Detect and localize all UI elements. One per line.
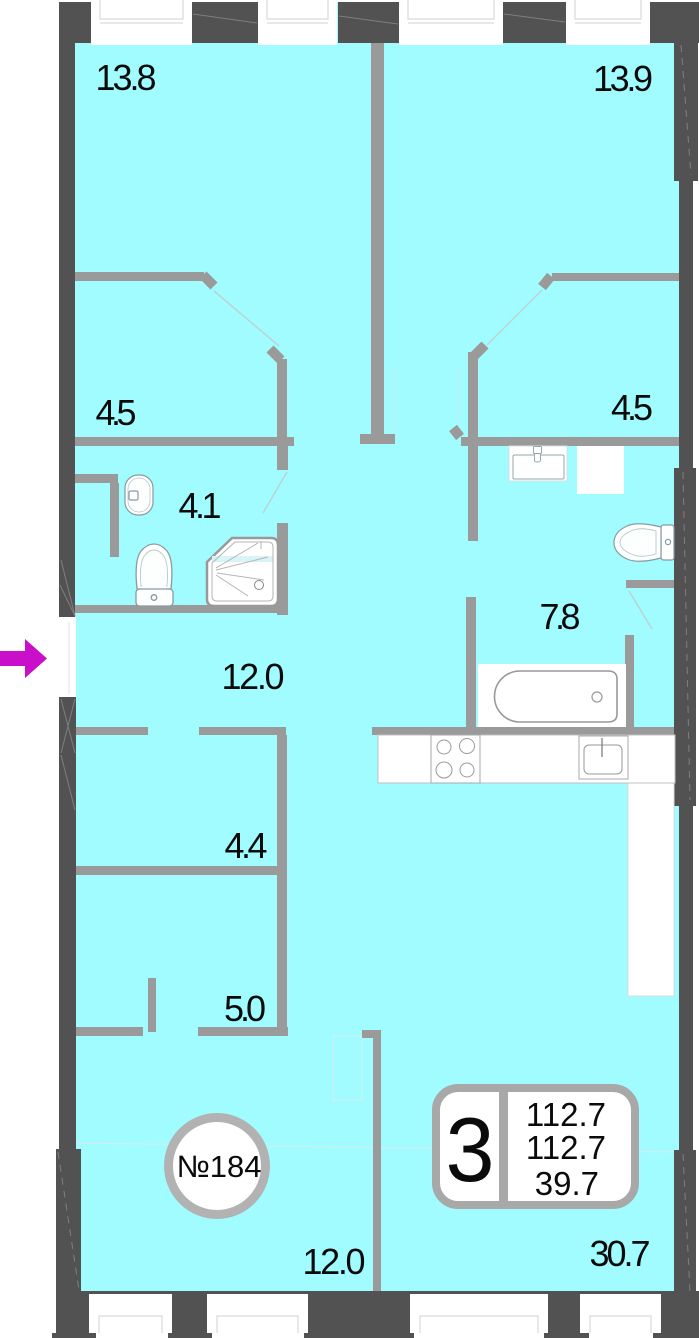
svg-text:112.7: 112.7	[526, 1096, 606, 1133]
svg-text:13.8: 13.8	[96, 57, 157, 98]
svg-text:13.9: 13.9	[593, 58, 653, 99]
svg-text:№184: №184	[177, 1149, 262, 1184]
svg-text:7.8: 7.8	[540, 596, 581, 637]
svg-text:4.5: 4.5	[611, 387, 653, 428]
svg-text:4.5: 4.5	[96, 392, 137, 433]
svg-text:39.7: 39.7	[535, 1165, 599, 1202]
svg-text:30.7: 30.7	[590, 1233, 651, 1274]
svg-text:4.4: 4.4	[225, 825, 268, 866]
svg-text:12.0: 12.0	[222, 656, 285, 697]
svg-text:112.7: 112.7	[526, 1129, 606, 1166]
svg-text:12.0: 12.0	[303, 1241, 366, 1282]
svg-text:5.0: 5.0	[224, 988, 266, 1029]
svg-text:3: 3	[446, 1100, 495, 1201]
svg-text:4.1: 4.1	[179, 485, 222, 526]
